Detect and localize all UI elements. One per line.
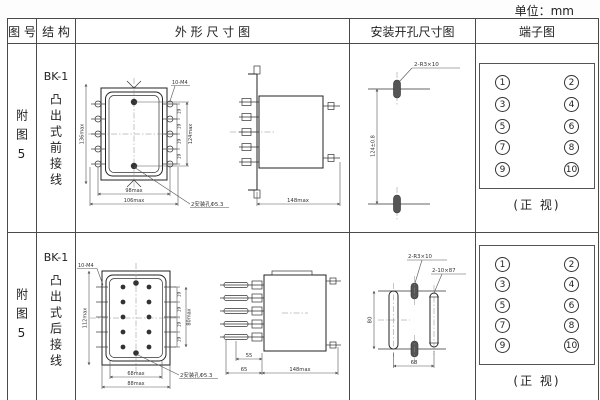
front-view: 10-M4 112max 19 <box>77 263 218 389</box>
terminal-diagram: 1 3 5 7 9 2 4 6 8 10 <box>476 233 598 400</box>
structure-label: 凸出式前接线 <box>48 93 65 189</box>
thread-callout: 10-M4 <box>172 80 188 86</box>
terminal-pin: 3 <box>495 277 510 292</box>
dim-pitch: 19 <box>177 337 183 343</box>
slot-hole <box>394 80 401 98</box>
slot-hole <box>394 195 401 213</box>
dim-height-overall: 136max <box>80 124 86 144</box>
dim-depth: 148max <box>287 198 310 204</box>
dim-pitch: 19 <box>177 292 183 298</box>
header-terminal: 端子图 <box>476 19 599 44</box>
dim-width-outer: 106max <box>124 198 144 204</box>
terminal-pin: 10 <box>564 162 579 177</box>
header-outline: 外 形 尺 寸 图 <box>76 19 350 44</box>
terminal-box: 1 3 5 7 9 2 4 6 8 10 <box>479 245 595 365</box>
header-row: 图 号 结 构 外 形 尺 寸 图 安装开孔尺寸图 端子图 <box>8 19 599 44</box>
terminal-pin: 7 <box>495 318 510 333</box>
dim-blade-length: 55 <box>246 353 253 359</box>
dim-pitch: 19 <box>177 154 183 160</box>
outline-drawing-front-wiring: 19 19 19 19 10-M4 136max <box>76 44 349 232</box>
terminal-caption: (正 视) <box>513 196 560 213</box>
dim-hole-spacing: 68 <box>411 360 418 366</box>
terminal-pin: 7 <box>495 140 510 155</box>
dim-terminal-span: 80max <box>187 308 193 325</box>
terminal-pin: 10 <box>564 338 579 353</box>
dim-pitch: 19 <box>177 124 183 130</box>
dim-depth: 148max <box>289 367 310 373</box>
terminal-pin: 8 <box>564 140 579 155</box>
terminal-pin: 4 <box>564 277 579 292</box>
dim-width-inner: 68max <box>127 371 144 377</box>
structure-label: 凸出式后接线 <box>48 274 65 370</box>
terminal-caption: (正 视) <box>513 372 560 389</box>
thread-callout: 10-M4 <box>78 263 94 269</box>
dim-width-outer: 88max <box>127 381 144 387</box>
unit-label: 单位：mm <box>515 2 574 19</box>
side-view: 148max <box>230 66 340 206</box>
model-label: BK-1 <box>44 251 69 264</box>
mounting-hole-drawing: 80 68 2-R3×10 2-10×87 <box>350 233 475 400</box>
figure-number: 附图5 <box>14 288 31 347</box>
terminal-pin: 9 <box>495 162 510 177</box>
dim-pitch: 19 <box>177 307 183 313</box>
mounting-holes-callout: 2安装孔Φ5.3 <box>191 200 223 208</box>
figure-number: 附图5 <box>14 109 31 168</box>
drawing-table: 图 号 结 构 外 形 尺 寸 图 安装开孔尺寸图 端子图 附图5 BK-1 凸… <box>7 18 599 400</box>
dim-pitch: 19 <box>177 109 183 115</box>
dim-hole-distance: 124±0.8 <box>371 135 377 157</box>
terminal-pin: 1 <box>495 75 510 90</box>
table-row: 附图5 BK-1 凸出式前接线 <box>8 44 599 233</box>
slot-callout-2: 2-10×87 <box>432 268 456 274</box>
dim-pin-length: 65 <box>241 367 248 373</box>
terminal-pin: 2 <box>564 257 579 272</box>
slot-callout: 2-R3×10 <box>414 62 439 68</box>
dim-height-overall: 112max <box>83 308 89 328</box>
dim-hole-height: 80 <box>368 316 374 323</box>
terminal-pin: 1 <box>495 257 510 272</box>
mounting-holes-callout: 2安装孔Φ5.3 <box>180 371 212 379</box>
header-figure: 图 号 <box>8 19 37 44</box>
terminal-pin: 6 <box>564 119 579 134</box>
front-view: 19 19 19 19 10-M4 136max <box>80 78 230 208</box>
dim-width-inner: 98max <box>125 188 142 194</box>
model-label: BK-1 <box>44 70 69 83</box>
outline-drawing-rear-wiring: 10-M4 112max 19 <box>76 233 349 400</box>
slot-callout: 2-R3×10 <box>408 254 432 260</box>
dim-stud-distance: 124max <box>188 124 194 144</box>
terminal-pin: 8 <box>564 318 579 333</box>
terminal-diagram: 1 3 5 7 9 2 4 6 8 10 <box>476 44 598 232</box>
terminal-box: 1 3 5 7 9 2 4 6 8 10 <box>479 63 595 189</box>
terminal-pin: 4 <box>564 97 579 112</box>
terminal-pin: 9 <box>495 338 510 353</box>
terminal-pin: 5 <box>495 119 510 134</box>
page: 单位：mm 图 号 结 构 外 形 尺 寸 图 安装开孔尺寸图 端子图 附图5 … <box>0 0 600 400</box>
terminal-pin: 3 <box>495 97 510 112</box>
terminal-pin: 5 <box>495 298 510 313</box>
header-mounting: 安装开孔尺寸图 <box>350 19 476 44</box>
mounting-hole-drawing: 124±0.8 2-R3×10 <box>350 44 475 232</box>
terminal-pin: 6 <box>564 298 579 313</box>
dim-pitch: 19 <box>177 322 183 328</box>
terminal-pin: 2 <box>564 75 579 90</box>
dim-pitch: 19 <box>177 139 183 145</box>
table-row: 附图5 BK-1 凸出式后接线 <box>8 233 599 400</box>
header-structure: 结 构 <box>37 19 76 44</box>
side-view: 55 65 148max <box>220 271 341 375</box>
